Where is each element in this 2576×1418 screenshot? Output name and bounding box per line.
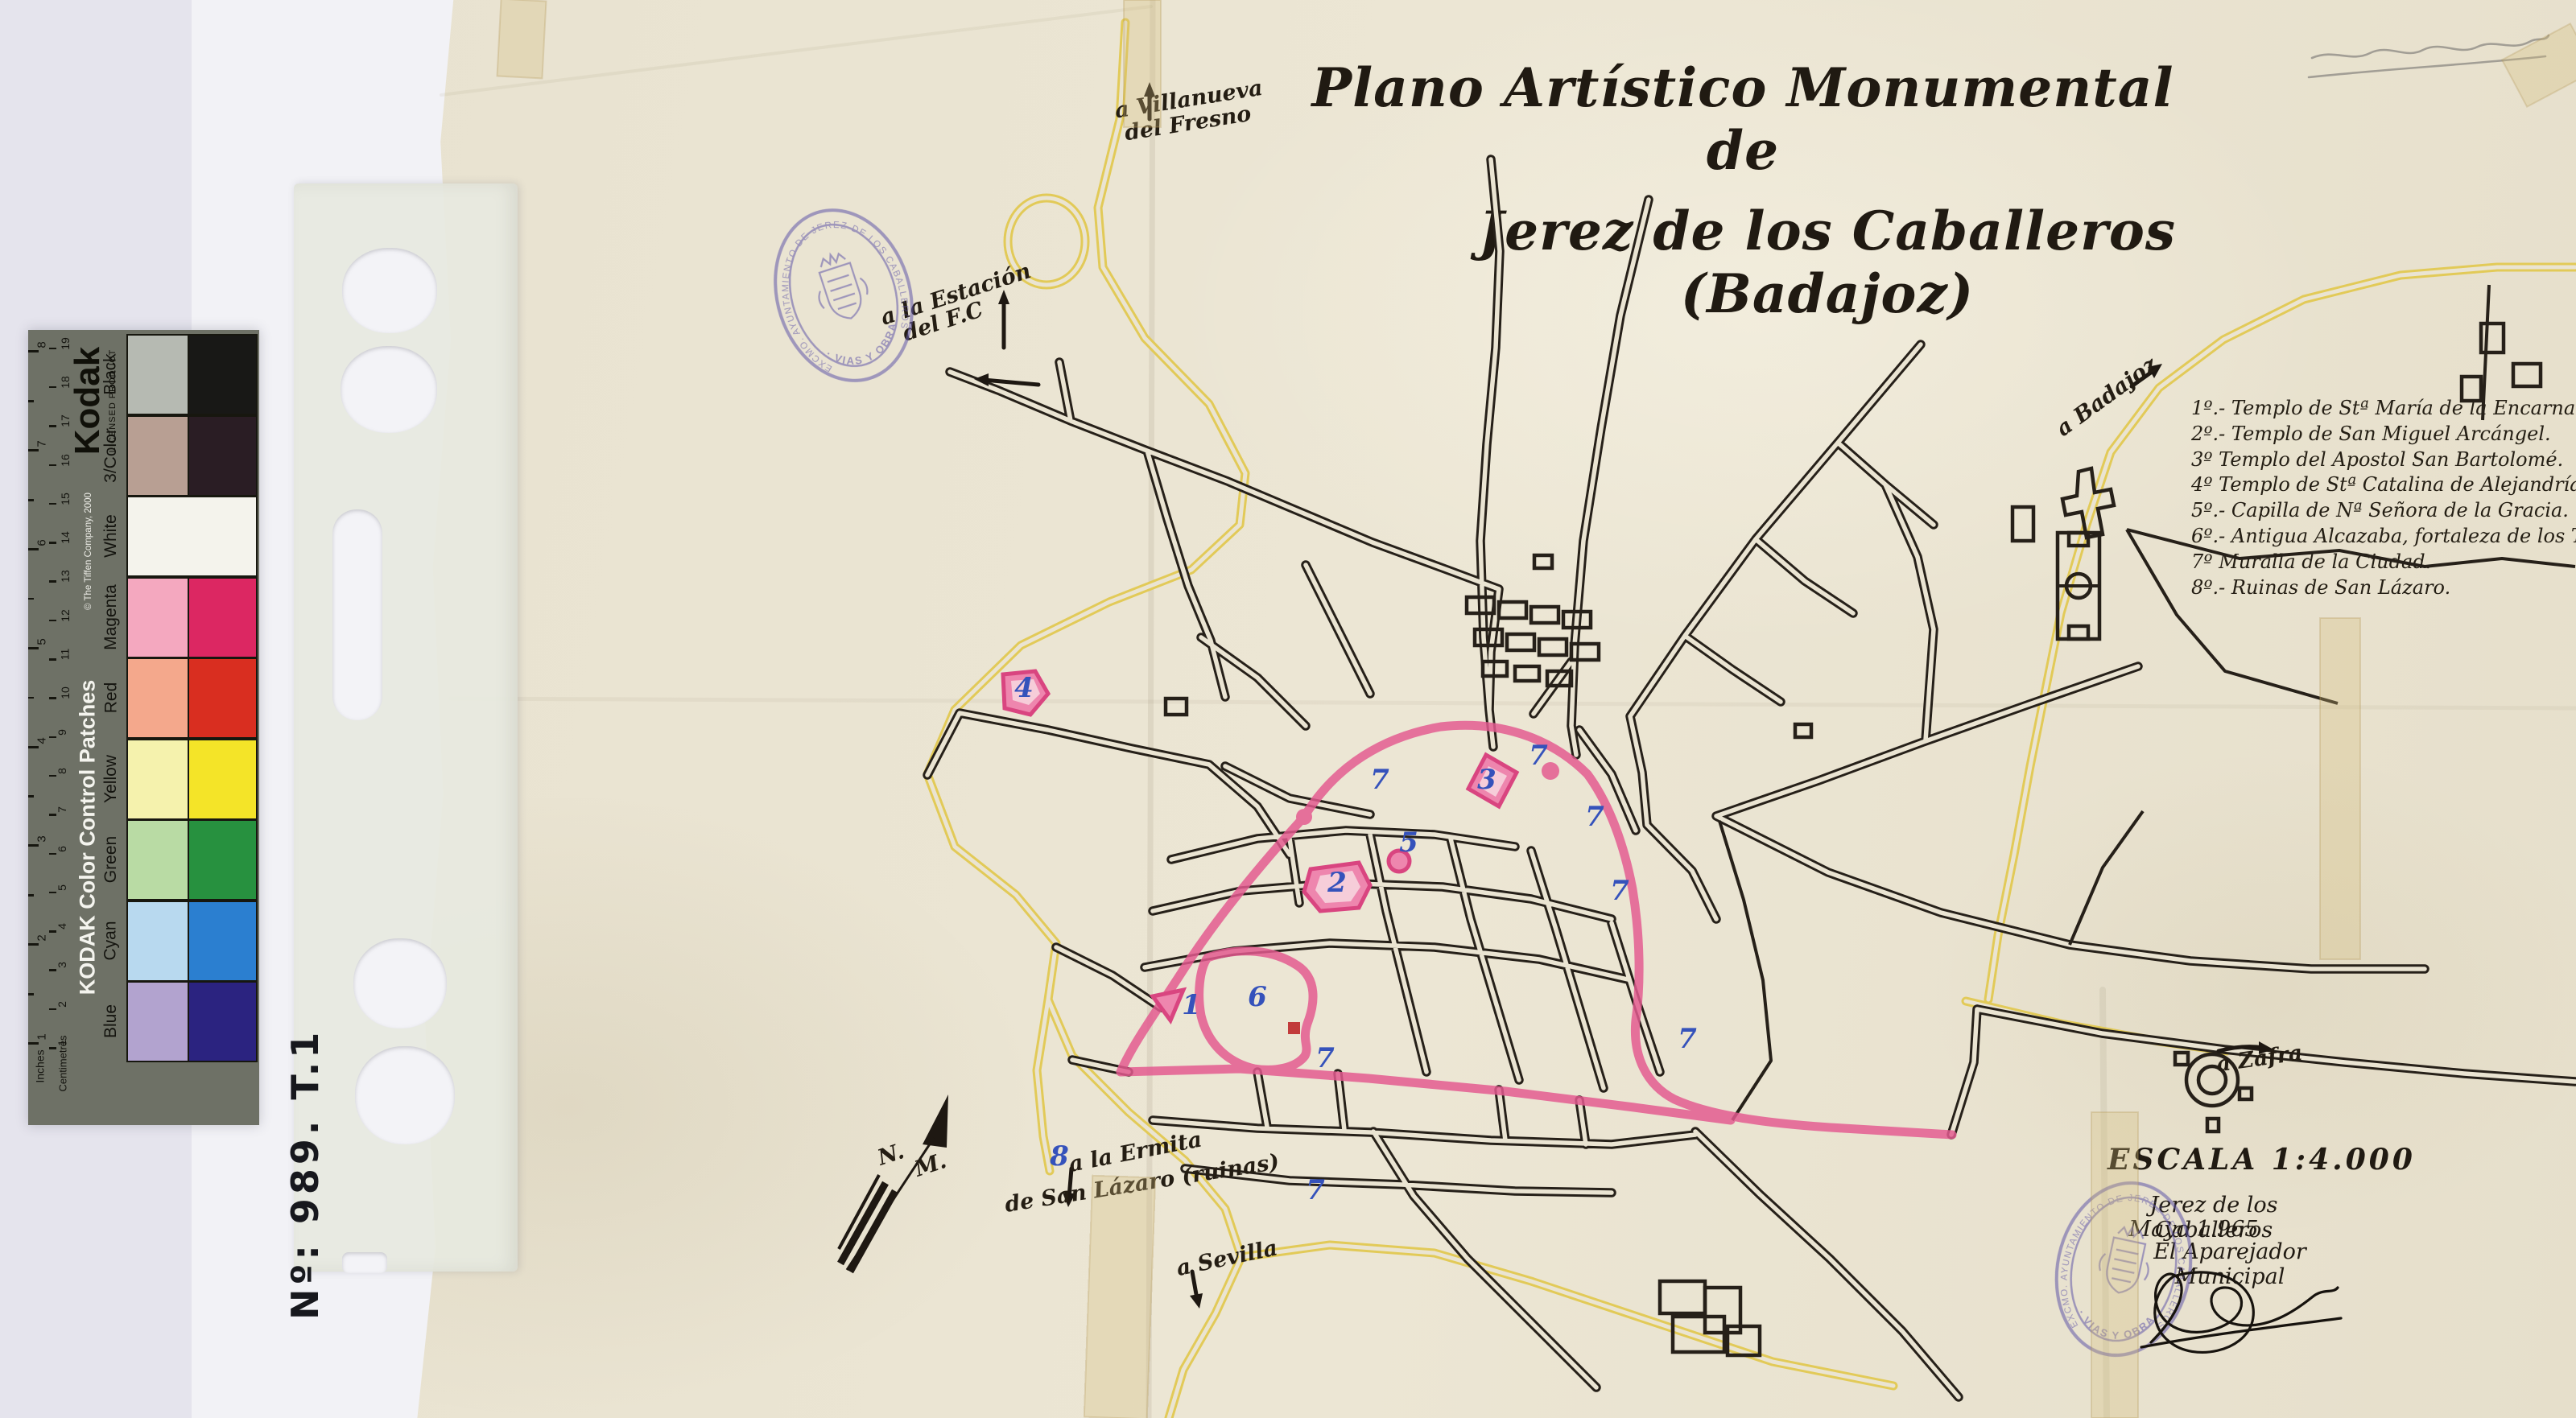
ruler-tick bbox=[28, 795, 34, 798]
ruler-number: 15 bbox=[59, 493, 72, 505]
ruler-tick bbox=[28, 449, 39, 451]
scale-date: Mayo 1.965 bbox=[2109, 1217, 2278, 1242]
legend-item: 7º Muralla de la Ciudad. bbox=[2191, 550, 2570, 575]
ruler-tick bbox=[49, 464, 56, 467]
legend-item: 3º Templo del Apostol San Bartolomé. bbox=[2191, 447, 2570, 473]
ruler-tick bbox=[28, 598, 34, 600]
ruler-tick bbox=[49, 425, 56, 427]
legend-item: 1º.- Templo de Stª María de la Encarnaci… bbox=[2191, 396, 2570, 422]
ruler-number: 13 bbox=[59, 571, 72, 583]
ruler-tick bbox=[49, 386, 56, 389]
ruler-tick bbox=[28, 350, 39, 352]
ruler-number: 5 bbox=[35, 638, 49, 645]
punch-hole bbox=[353, 938, 447, 1028]
legend-item: 5º.- Capilla de Nª Señora de la Gracia. bbox=[2191, 498, 2570, 524]
ruler-number: 7 bbox=[35, 441, 49, 447]
ruler-tick bbox=[28, 943, 39, 946]
ruler-number: 4 bbox=[35, 737, 49, 744]
color-patch-light bbox=[126, 739, 189, 820]
color-patch bbox=[126, 496, 258, 577]
color-patch-dark bbox=[188, 819, 258, 901]
archive-number: Nº: 989. T.1 bbox=[283, 1028, 327, 1320]
plastic-film-strip bbox=[294, 183, 518, 1272]
color-patch-light bbox=[126, 901, 189, 982]
kodak-copyright: © The Tiffen Company, 2000 bbox=[78, 491, 99, 612]
ruler-number: 8 bbox=[35, 342, 49, 348]
legend-item: 4º Templo de Stª Catalina de Alejandría. bbox=[2191, 472, 2570, 498]
ruler-number: 2 bbox=[35, 935, 49, 942]
color-patch-dark bbox=[188, 577, 258, 658]
color-patch-light bbox=[126, 415, 189, 497]
ruler-tick bbox=[28, 697, 34, 699]
ruler-tick bbox=[28, 746, 39, 748]
kodak-color-strip: 1234567812345678910111213141516171819 Bl… bbox=[28, 330, 259, 1125]
kodak-strip-title: KODAK Color Control Patches bbox=[52, 604, 123, 1070]
legend-item: 6º.- Antigua Alcazaba, fortaleza de los … bbox=[2191, 524, 2570, 550]
punch-hole bbox=[355, 1046, 455, 1144]
color-patch-light bbox=[126, 577, 189, 658]
monument-legend: 1º.- Templo de Stª María de la Encarnaci… bbox=[2191, 396, 2570, 600]
legend-item: 8º.- Ruinas de San Lázaro. bbox=[2191, 575, 2570, 601]
color-patch-dark bbox=[188, 657, 258, 739]
edge-notch bbox=[342, 1252, 387, 1273]
centimetres-label: Centimetres bbox=[52, 1011, 73, 1115]
ruler-tick bbox=[28, 400, 34, 402]
ruler-tick bbox=[28, 993, 34, 995]
legend-item: 2º.- Templo de San Miguel Arcángel. bbox=[2191, 422, 2570, 447]
ruler-number: 14 bbox=[59, 531, 72, 544]
ruler-tick bbox=[49, 503, 56, 505]
ruler-tick bbox=[28, 499, 34, 501]
punch-slot bbox=[332, 509, 382, 720]
ruler-number: 6 bbox=[35, 539, 49, 546]
color-patch-light bbox=[126, 981, 189, 1062]
color-patch-light bbox=[126, 819, 189, 901]
patch-label: White bbox=[97, 496, 125, 576]
scale-author: El Aparejador Municipal bbox=[2125, 1239, 2334, 1289]
ruler-tick bbox=[28, 894, 34, 897]
legend-list: 1º.- Templo de Stª María de la Encarnaci… bbox=[2191, 396, 2570, 600]
map-title-line2: Jerez de los Caballeros (Badajoz) bbox=[1433, 200, 2222, 325]
color-patch-dark bbox=[188, 981, 258, 1062]
kodak-licensed: LICENSED PRODUCT bbox=[102, 344, 123, 457]
ruler-tick bbox=[49, 348, 56, 350]
color-patch-dark bbox=[188, 415, 258, 497]
ruler-tick bbox=[28, 844, 39, 847]
color-patch-dark bbox=[188, 739, 258, 820]
ruler-tick bbox=[28, 548, 39, 550]
scale-text: ESCALA 1:4.000 bbox=[2107, 1143, 2416, 1177]
color-patch-dark bbox=[188, 334, 258, 415]
ruler-tick bbox=[49, 542, 56, 544]
color-patch-dark bbox=[188, 901, 258, 982]
ruler-tick bbox=[49, 580, 56, 583]
inches-label: Inches bbox=[30, 1022, 51, 1111]
map-title-line1: Plano Artístico Monumental de bbox=[1300, 56, 2186, 182]
color-patch-light bbox=[126, 657, 189, 739]
ruler-number: 3 bbox=[35, 836, 49, 843]
ruler-tick bbox=[28, 647, 39, 649]
punch-hole bbox=[342, 248, 437, 333]
color-patch-light bbox=[126, 334, 189, 415]
punch-hole bbox=[341, 346, 437, 433]
scanned-map-page: Plano Artístico Monumental de Jerez de l… bbox=[0, 0, 2576, 1418]
